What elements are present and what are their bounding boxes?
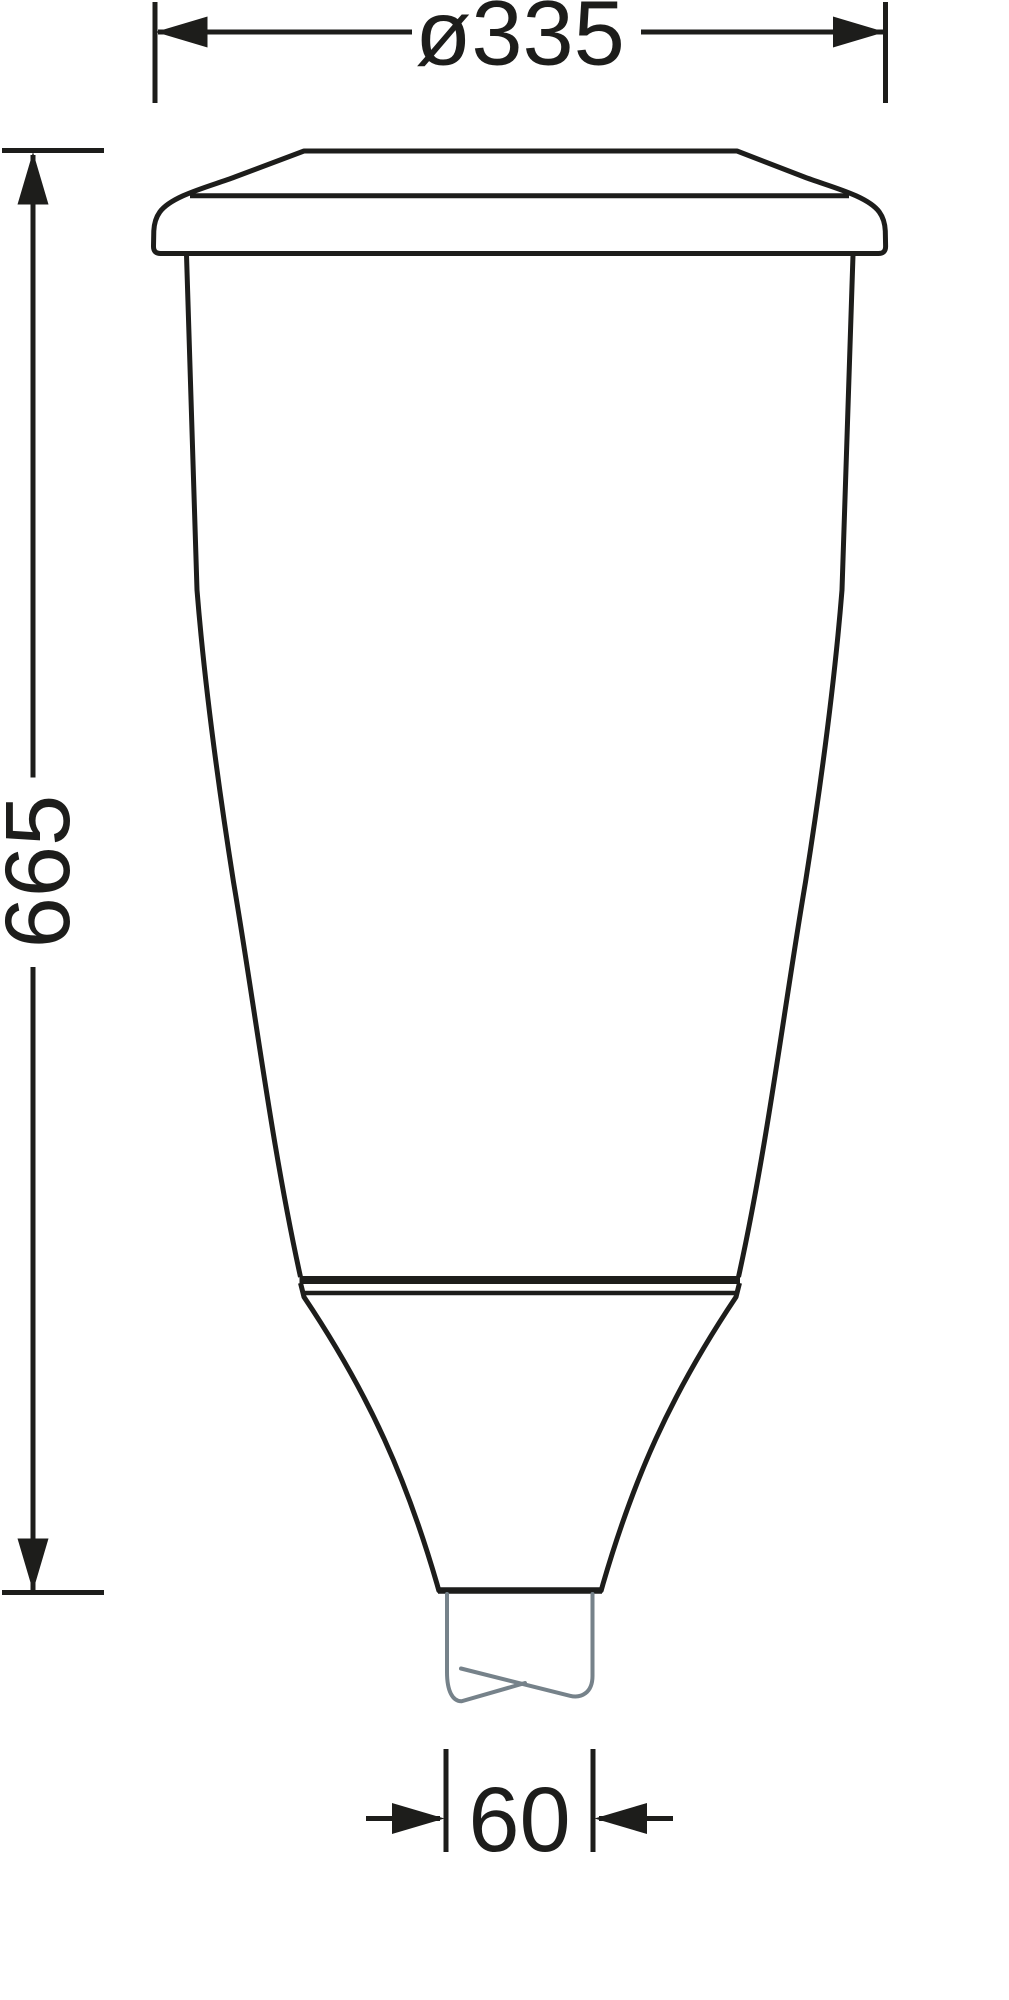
svg-text:ø335: ø335: [415, 0, 625, 85]
svg-text:665: 665: [0, 795, 89, 949]
svg-text:60: 60: [468, 1769, 570, 1871]
